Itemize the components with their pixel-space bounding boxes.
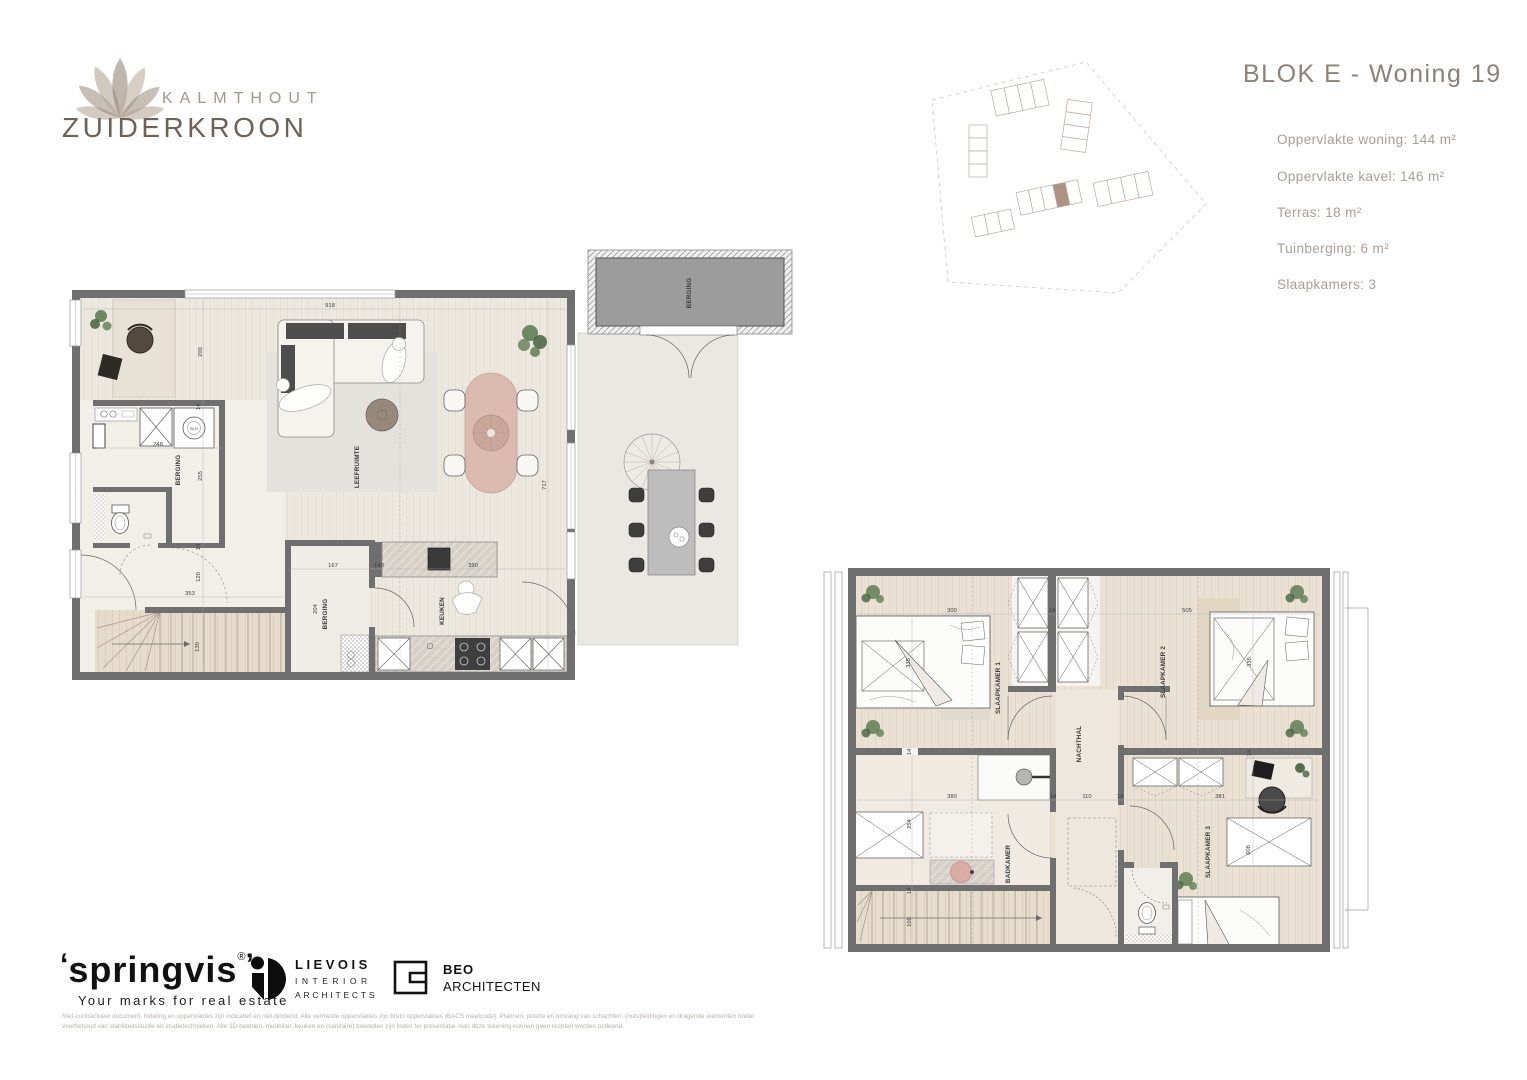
bed-sk1 [856, 616, 990, 708]
lievois-logo-icon [250, 956, 288, 1002]
wardrobe-sk3 [1227, 818, 1311, 866]
dim-300: 300 [947, 608, 957, 614]
dim-100: 100 [907, 917, 913, 927]
dim-254: 254 [907, 818, 913, 828]
floor-stairs [95, 610, 285, 673]
lievois-logo: LIEVOIS INTERIOR ARCHITECTS [295, 957, 377, 1000]
dim-120: 120 [196, 572, 202, 582]
dim-200: 200 [198, 347, 204, 357]
washer-dryer: W-D [174, 408, 214, 448]
spec-terras: Terras: 18 m² [1277, 205, 1362, 220]
dim-14f: 14 [907, 887, 913, 894]
shed-label: BERGING [686, 278, 693, 309]
dim-381: 381 [1215, 794, 1225, 800]
dim-505: 505 [1182, 608, 1192, 614]
beo-logo: BEO ARCHITECTEN [443, 962, 541, 994]
spec-woning: Oppervlakte woning: 144 m² [1277, 132, 1456, 147]
floorplan-sheet: { "brand": { "kicker": "KALMTHOUT", "nam… [0, 0, 1527, 1080]
springvis-logo: ‘springvis®’ [60, 948, 254, 991]
site-block-bottom-left [971, 209, 1014, 237]
dim-918: 918 [325, 303, 335, 309]
dim-14d: 14 [1117, 794, 1124, 800]
stove [455, 638, 490, 670]
dim-248: 248 [153, 442, 163, 448]
dim-608: 608 [1246, 845, 1252, 855]
coffee-table [366, 399, 398, 431]
kitchen-counter [375, 636, 567, 672]
spec-slaapkamers: Slaapkamers: 3 [1277, 277, 1376, 292]
dim-bracket-right [1345, 608, 1368, 910]
dim-380: 380 [947, 794, 957, 800]
dim-14b: 14 [196, 543, 202, 550]
bed-sk3 [1175, 897, 1279, 947]
brand-kicker: KALMTHOUT [162, 90, 324, 108]
lievois-line2: INTERIOR [295, 976, 377, 986]
dim-110: 110 [1082, 794, 1091, 800]
utility-counter [95, 408, 137, 421]
label-slaapkamer3: SLAAPKAMER 3 [1205, 826, 1212, 878]
spec-tuinberging: Tuinberging: 6 m² [1277, 241, 1389, 256]
spec-kavel: Oppervlakte kavel: 146 m² [1277, 169, 1445, 184]
label-keuken: KEUKEN [439, 597, 446, 625]
side-table [669, 527, 689, 547]
springvis-name: springvis [68, 949, 237, 990]
dim-204: 204 [313, 603, 319, 613]
site-block-top [991, 79, 1049, 116]
beo-logo-icon [393, 960, 429, 996]
site-plan [915, 50, 1225, 310]
dim-353: 353 [185, 591, 195, 597]
vanity [930, 860, 994, 884]
dining-table [465, 373, 517, 493]
label-leefruimte: LEEFRUIMTE [354, 446, 361, 488]
lievois-line1: LIEVOIS [295, 957, 377, 972]
sink-corner [341, 635, 369, 672]
toilet-upper [1124, 868, 1172, 944]
bathroom-cabinet [855, 812, 923, 858]
lotus-logo-icon [58, 44, 218, 122]
dim-14-mid: 14 [907, 748, 913, 755]
beo-line1: BEO [443, 962, 541, 977]
label-slaapkamer1: SLAAPKAMER 1 [995, 662, 1002, 714]
washer-label: W-D [190, 426, 198, 431]
dim-140: 140 [374, 563, 384, 569]
tech-cabinet [93, 424, 105, 448]
site-block-left [969, 125, 987, 177]
dim-335-sk2: 335 [1247, 657, 1253, 667]
dim-717: 717 [542, 480, 548, 490]
dim-130: 130 [195, 642, 201, 652]
ground-floor-plan: BERGING [55, 240, 805, 690]
terrace-table [648, 470, 695, 575]
label-nachthal: NACHTHAL [1076, 726, 1083, 763]
beo-line2: ARCHITECTEN [443, 979, 541, 994]
dim-14-top: 14 [1049, 608, 1056, 614]
dim-335-sk1: 335 [906, 658, 912, 668]
utility-cabinet [140, 408, 172, 446]
label-badkamer: BADKAMER [1005, 845, 1012, 884]
site-block-bottom-right [1093, 171, 1153, 206]
site-boundary [932, 62, 1206, 293]
dim-14c: 14 [1050, 794, 1057, 800]
bed-sk2 [1210, 612, 1314, 706]
bath-zone [930, 813, 992, 857]
dim-167: 167 [328, 563, 338, 569]
label-slaapkamer2: SLAAPKAMER 2 [1160, 646, 1167, 698]
upper-floor-plan: 300 14 505 335 335 14 380 254 14 110 14 … [805, 550, 1440, 970]
shower [978, 755, 1050, 800]
coffee-machine [428, 548, 450, 570]
lievois-line3: ARCHITECTS [295, 990, 377, 1000]
label-berging-utility: BERGING [175, 455, 182, 486]
dim-14e: 14 [1247, 749, 1253, 756]
floor-nachthal [1056, 690, 1118, 944]
disclaimer-text: Niet-contractueel document. Indeling en … [62, 1012, 767, 1031]
dim-390: 390 [468, 563, 478, 569]
springvis-registered-icon: ® [237, 951, 245, 963]
dim-255: 255 [198, 471, 204, 481]
site-block-right [1061, 99, 1093, 152]
site-block-bottom-center [1016, 180, 1082, 215]
label-berging-storage: BERGING [322, 599, 329, 630]
dim-14a: 14 [196, 403, 202, 410]
island-wall [375, 542, 382, 577]
unit-title: BLOK E - Woning 19 [1243, 60, 1502, 89]
brand-name: ZUIDERKROON [62, 112, 307, 144]
